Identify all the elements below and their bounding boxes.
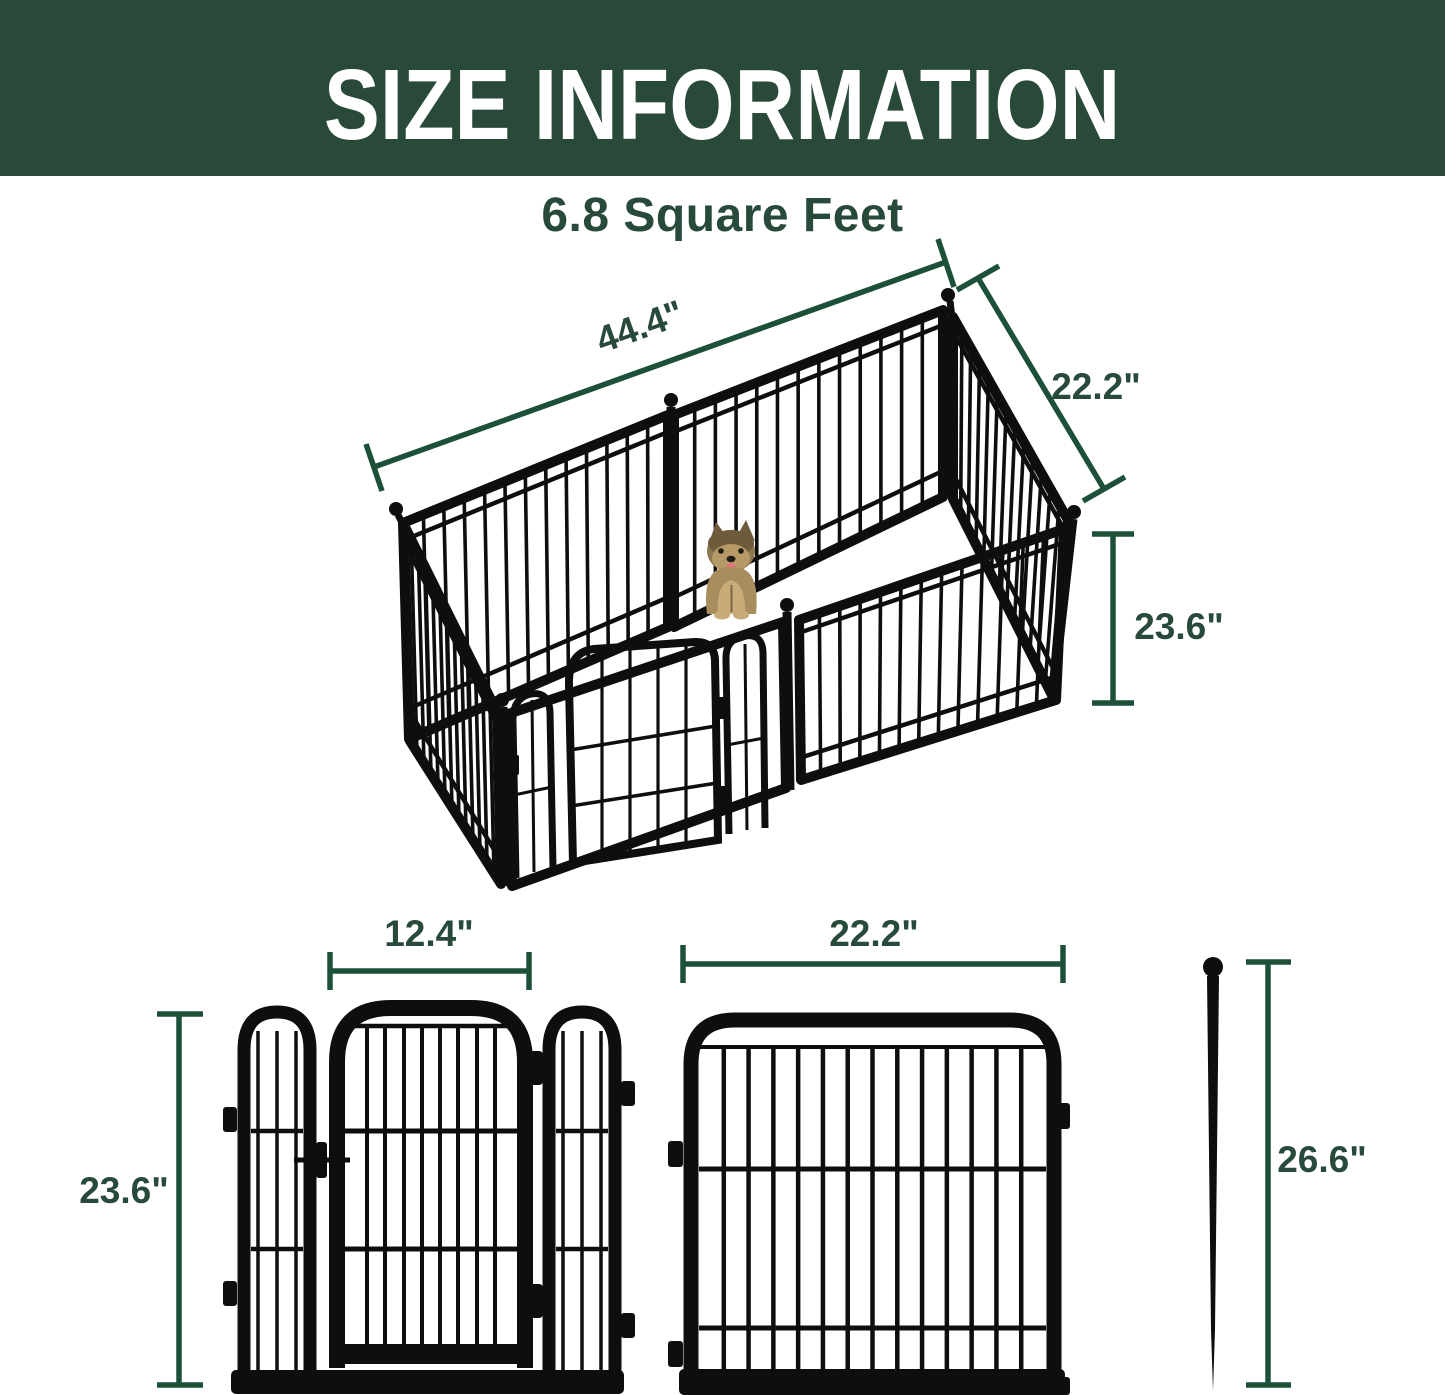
connector-tab — [621, 1313, 635, 1338]
pen-depth-label: 22.2" — [1051, 366, 1141, 408]
connector-tab — [668, 1341, 683, 1367]
pen-door-hinge-bottom — [714, 786, 729, 808]
stake-ball-top — [1203, 957, 1223, 977]
stake-length-label: 26.6" — [1277, 1139, 1367, 1181]
ground-stake-diagram — [1203, 957, 1223, 1391]
pen-south-corner-post — [503, 707, 508, 886]
connector-tab — [1055, 1377, 1070, 1395]
pen-height-dimension-line — [1092, 534, 1134, 703]
door-bottom-bar — [337, 1344, 525, 1364]
gate-height-label: 23.6" — [79, 1170, 169, 1212]
regular-panel-diagram — [668, 1020, 1070, 1395]
door-hinge — [517, 1284, 543, 1318]
ball-finial-north — [941, 288, 955, 302]
connector-tab — [1055, 1103, 1070, 1129]
ball-finial-east — [1067, 505, 1081, 519]
stake-spike — [1207, 976, 1219, 1391]
diagram-canvas — [0, 0, 1445, 1395]
ball-finial-back-middle — [664, 393, 678, 407]
pen-height-label: 23.6" — [1134, 606, 1224, 648]
connector-tab — [621, 1081, 635, 1106]
connector-tab — [223, 1281, 237, 1306]
ball-finial-west — [389, 502, 403, 516]
panel-width-label: 22.2" — [829, 913, 919, 955]
gate-panel-base-bar — [231, 1370, 624, 1394]
connector-tab — [223, 1107, 237, 1132]
pen-front-middle-post — [787, 612, 790, 790]
gate-panel-diagram — [223, 1008, 635, 1394]
pen-door-hinge-top — [714, 697, 729, 719]
regular-panel-base-bar — [679, 1369, 1065, 1395]
pen-width-dimension-line — [366, 239, 954, 491]
gate-door-width-dimension-line — [330, 952, 529, 990]
ball-finial-front-middle — [780, 598, 794, 612]
door-hinge — [517, 1051, 543, 1085]
gate-door-width-label: 12.4" — [384, 913, 474, 955]
connector-tab — [668, 1141, 683, 1167]
dog-illustration — [706, 520, 757, 620]
ball-finial-south — [495, 693, 509, 707]
